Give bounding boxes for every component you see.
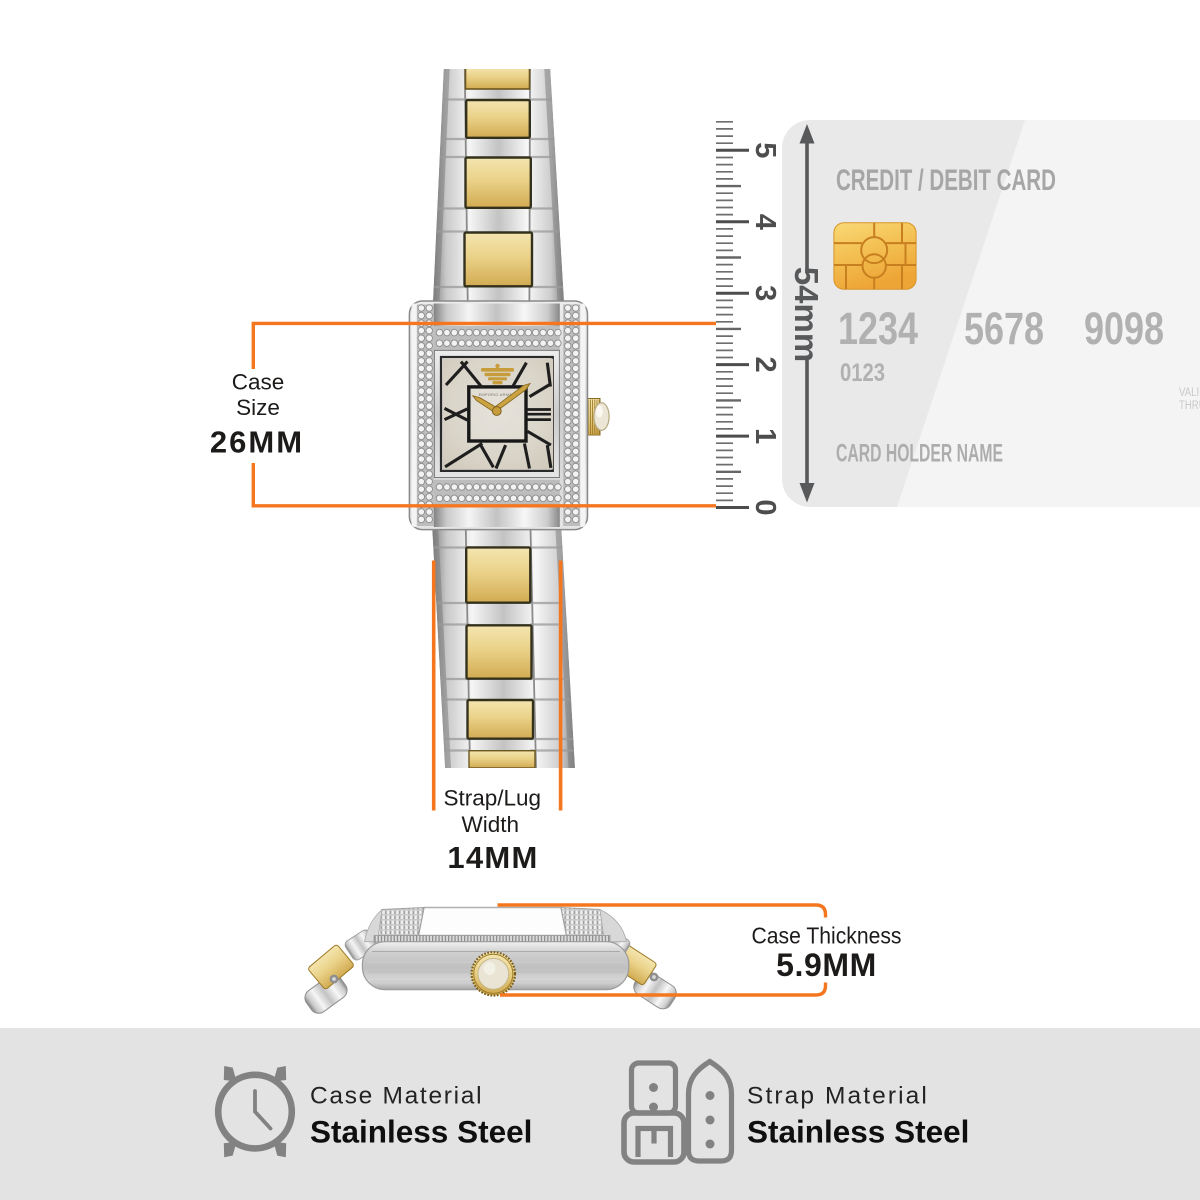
svg-text:14MM: 14MM	[447, 840, 538, 875]
svg-text:0123: 0123	[840, 358, 885, 387]
svg-text:Case Thickness: Case Thickness	[752, 922, 902, 948]
svg-text:26MM: 26MM	[210, 424, 304, 459]
svg-text:5678: 5678	[964, 303, 1044, 354]
svg-text:5.9MM: 5.9MM	[776, 947, 877, 983]
svg-text:3: 3	[749, 285, 781, 301]
svg-text:Strap/Lug: Strap/Lug	[444, 785, 542, 810]
svg-text:Stainless Steel: Stainless Steel	[310, 1113, 532, 1149]
svg-text:5: 5	[749, 142, 781, 158]
svg-text:VALID: VALID	[1179, 386, 1200, 399]
svg-text:9098: 9098	[1084, 303, 1164, 354]
svg-text:2: 2	[749, 357, 781, 373]
svg-text:0: 0	[749, 499, 781, 515]
svg-text:THRU: THRU	[1179, 399, 1200, 412]
svg-text:4: 4	[749, 214, 781, 230]
svg-text:CARD HOLDER NAME: CARD HOLDER NAME	[836, 440, 1003, 468]
svg-text:Width: Width	[462, 812, 520, 837]
svg-text:Case: Case	[232, 369, 285, 394]
svg-text:54mm: 54mm	[788, 267, 825, 362]
svg-text:1: 1	[749, 428, 781, 444]
svg-text:Stainless Steel: Stainless Steel	[747, 1113, 969, 1149]
svg-text:Strap Material: Strap Material	[747, 1083, 929, 1110]
svg-text:CREDIT / DEBIT CARD: CREDIT / DEBIT CARD	[836, 164, 1056, 197]
svg-text:Size: Size	[236, 395, 280, 420]
svg-text:Case Material: Case Material	[310, 1083, 483, 1110]
svg-text:1234: 1234	[838, 303, 918, 354]
